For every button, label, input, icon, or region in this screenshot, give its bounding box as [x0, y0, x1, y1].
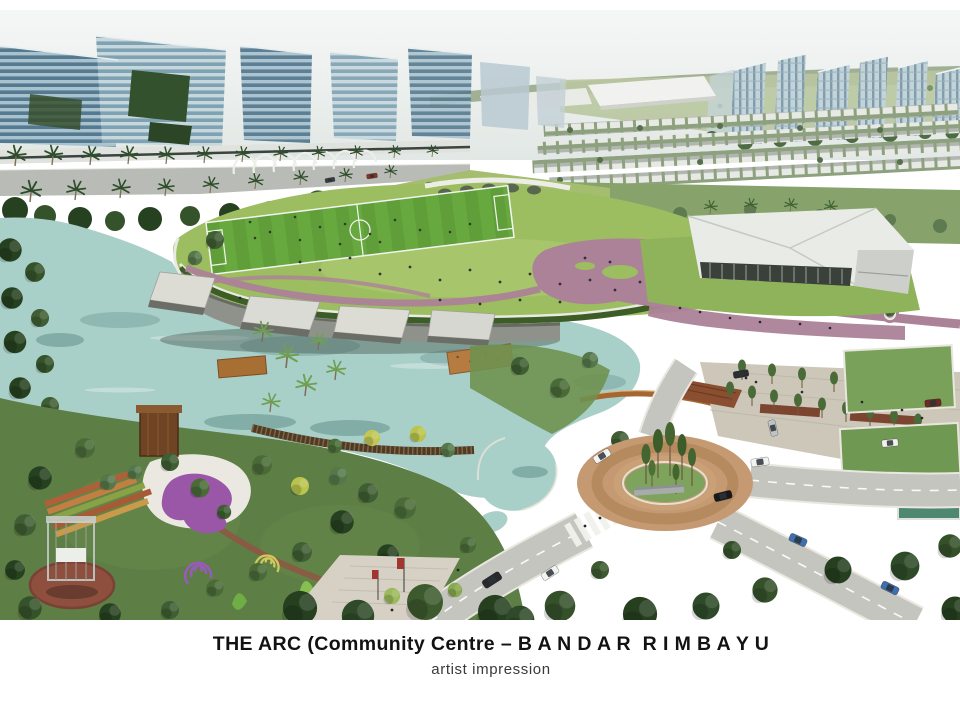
roundabout: [577, 422, 753, 531]
caption: THE ARC (Community Centre – B A N D A R …: [11, 631, 960, 678]
artist-impression-image: [0, 10, 960, 620]
wooden-lookout: [136, 405, 182, 456]
slide: THE ARC (Community Centre – B A N D A R …: [0, 0, 960, 720]
rendered-scene: [0, 10, 960, 620]
caption-title: THE ARC (Community Centre – B A N D A R …: [11, 631, 960, 657]
timber-deck-west: [217, 356, 266, 378]
caption-subtitle: artist impression: [11, 661, 960, 678]
